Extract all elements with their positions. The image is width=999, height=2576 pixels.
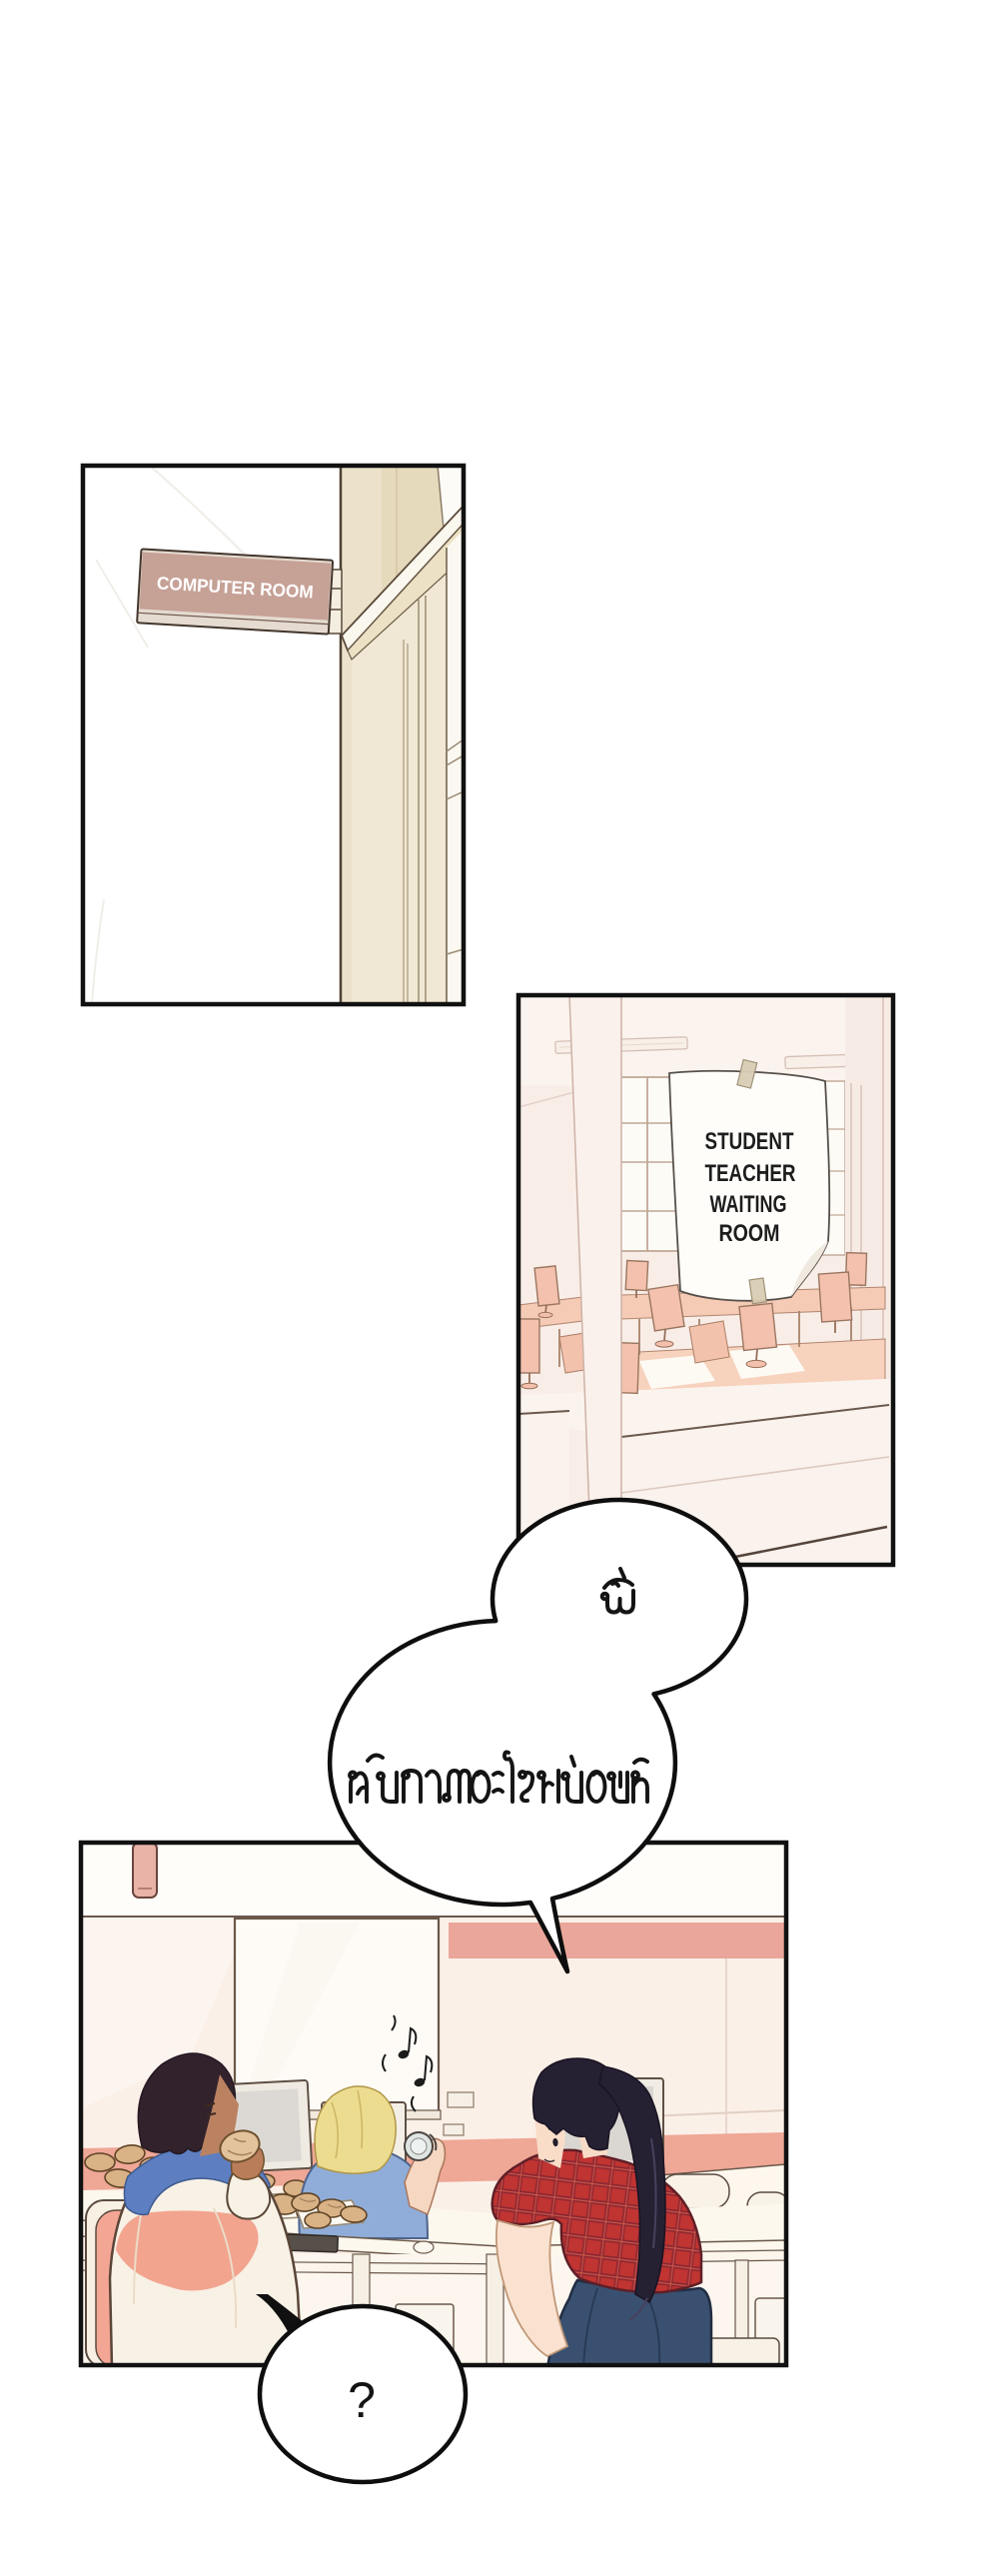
svg-text:TEACHER: TEACHER bbox=[705, 1160, 796, 1187]
svg-text:ROOM: ROOM bbox=[719, 1220, 780, 1247]
svg-text:WAITING: WAITING bbox=[710, 1191, 787, 1218]
svg-text:?: ? bbox=[348, 2372, 376, 2428]
svg-text:STUDENT: STUDENT bbox=[705, 1128, 794, 1155]
